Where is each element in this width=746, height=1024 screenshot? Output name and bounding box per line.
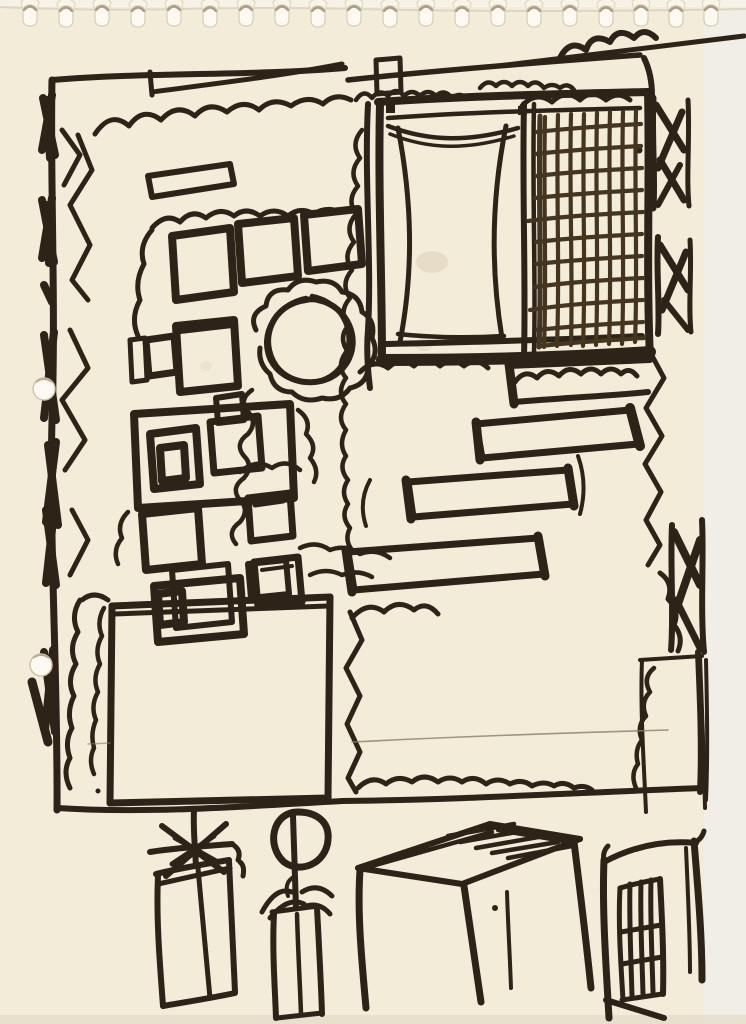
paper-bottom-shadow (0, 1015, 746, 1024)
garden-plan-sketch-image (0, 0, 746, 1024)
pencil-guideline (88, 743, 110, 744)
scanned-notebook-page (0, 0, 746, 1024)
scan-edge-right (704, 0, 746, 1024)
